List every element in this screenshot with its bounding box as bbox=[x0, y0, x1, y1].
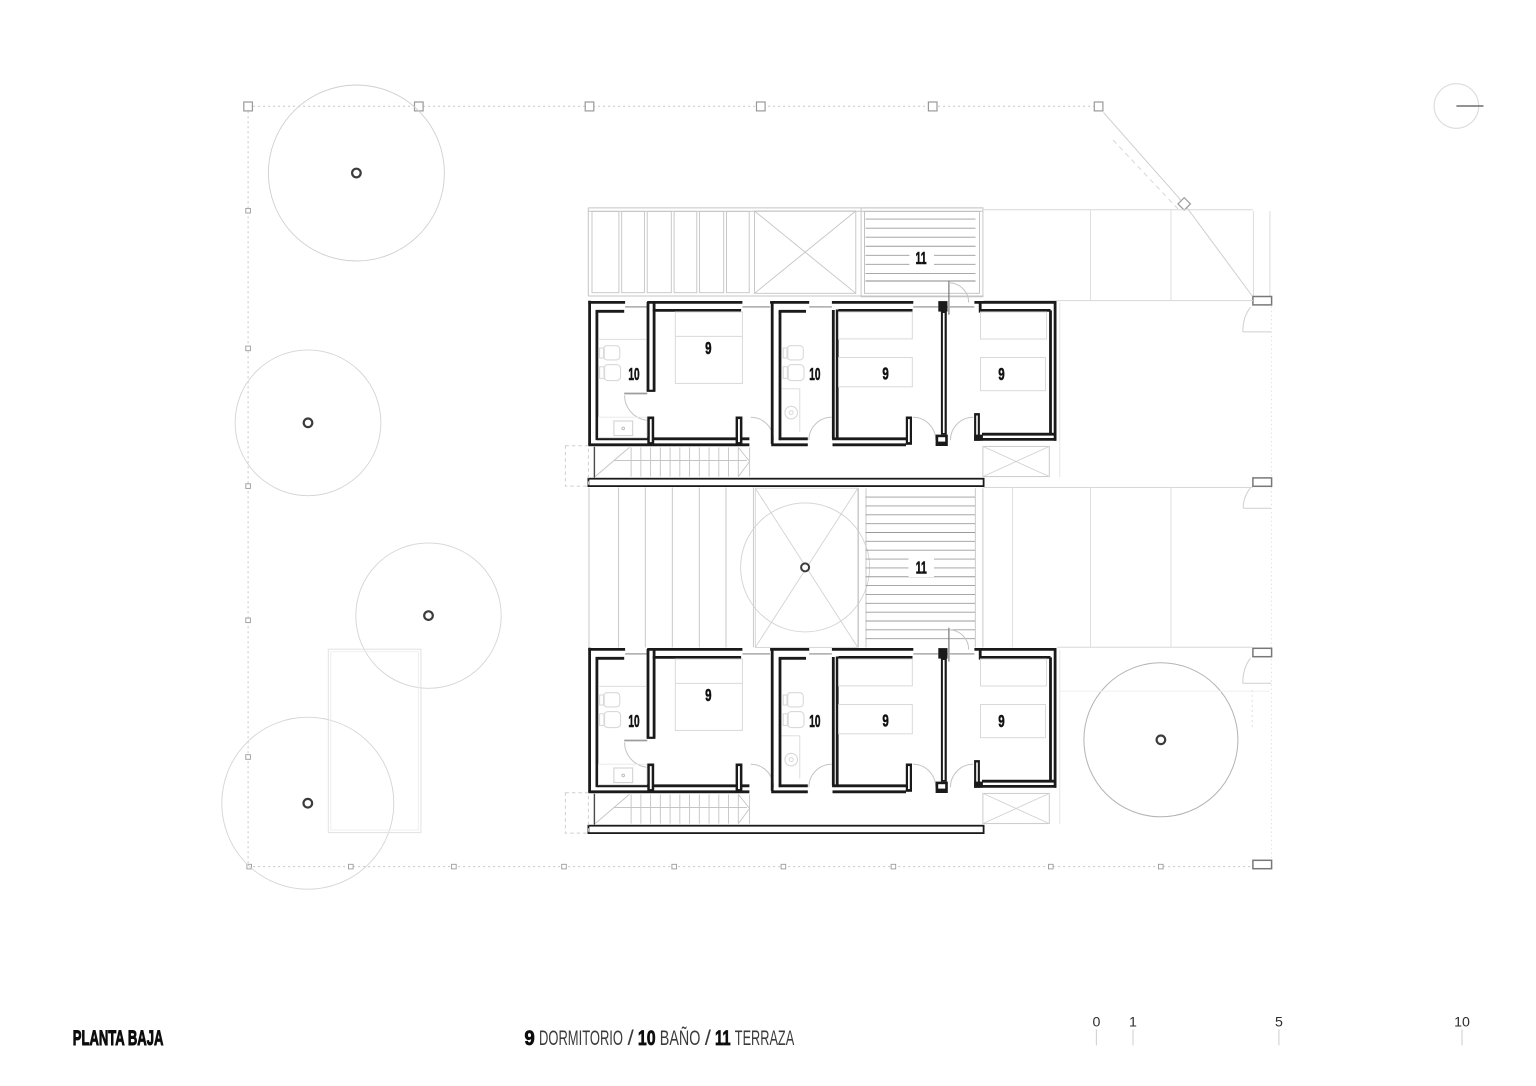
svg-text:/: / bbox=[705, 1027, 711, 1050]
svg-text:10: 10 bbox=[638, 1027, 656, 1050]
svg-text:10: 10 bbox=[809, 364, 820, 384]
svg-text:DORMITORIO: DORMITORIO bbox=[539, 1027, 623, 1050]
svg-text:PLANTA BAJA: PLANTA BAJA bbox=[73, 1025, 164, 1050]
svg-text:11: 11 bbox=[916, 248, 927, 268]
svg-text:9: 9 bbox=[882, 363, 888, 383]
svg-text:11: 11 bbox=[715, 1027, 731, 1050]
svg-text:10: 10 bbox=[628, 711, 639, 731]
svg-text:10: 10 bbox=[628, 364, 639, 384]
svg-text:9: 9 bbox=[705, 685, 711, 705]
svg-text:5: 5 bbox=[1275, 1014, 1283, 1030]
svg-text:11: 11 bbox=[916, 558, 927, 578]
svg-text:9: 9 bbox=[705, 338, 711, 358]
svg-text:TERRAZA: TERRAZA bbox=[735, 1027, 794, 1050]
svg-text:9: 9 bbox=[882, 710, 888, 730]
svg-text:10: 10 bbox=[1454, 1014, 1470, 1030]
svg-text:0: 0 bbox=[1092, 1014, 1100, 1030]
svg-text:9: 9 bbox=[524, 1027, 534, 1050]
svg-text:1: 1 bbox=[1129, 1014, 1137, 1030]
svg-text:BAÑO: BAÑO bbox=[660, 1026, 701, 1050]
svg-text:9: 9 bbox=[998, 711, 1004, 731]
svg-text:10: 10 bbox=[809, 711, 820, 731]
svg-text:9: 9 bbox=[998, 364, 1004, 384]
svg-text:/: / bbox=[628, 1027, 634, 1050]
